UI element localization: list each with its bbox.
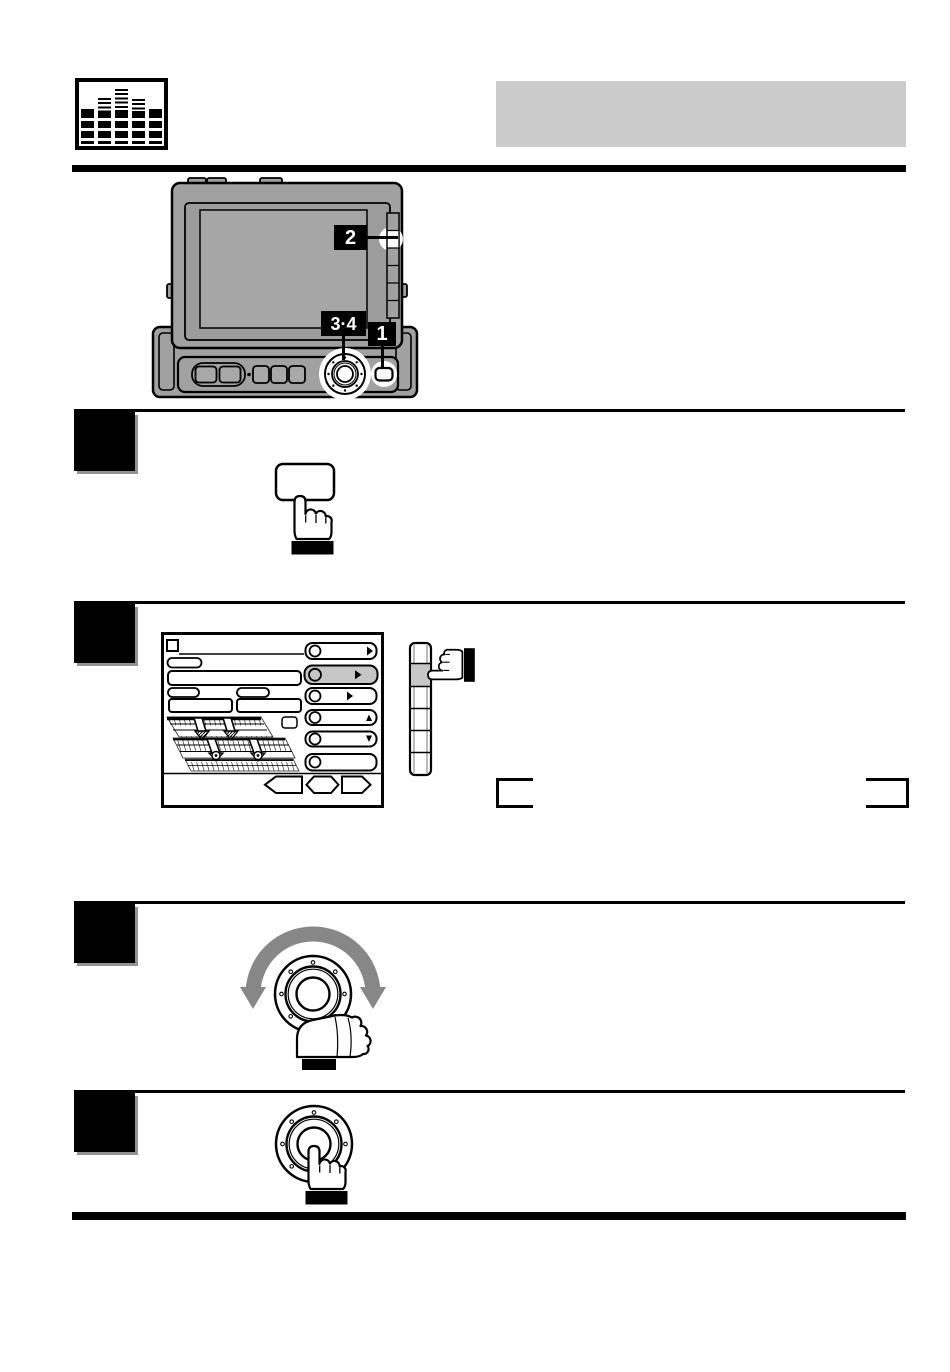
callout-line [365,236,398,239]
press-knob-illustration [270,1096,370,1211]
step-number-box-1 [74,412,135,471]
step-rule [74,409,905,412]
head-unit-illustration [150,176,435,406]
manual-page: 2 3·4 1 [0,0,950,1372]
callout-1: 1 [368,322,396,346]
gripping-hand-icon [297,1015,371,1070]
press-key-illustration [274,458,352,560]
callout-line [381,345,384,368]
screen-value-box [168,671,301,685]
callout-line [342,335,345,360]
side-key-strip-press [404,640,484,780]
eq-bar [132,99,145,144]
eq-bar [149,109,162,144]
header-rule [72,165,906,172]
panel-button [271,366,287,383]
reference-box-right [866,778,909,808]
pressing-hand-icon [292,496,334,555]
screen-small-box [282,717,297,728]
screen-bottom-buttons [265,777,371,794]
step-number-box-3 [74,904,135,963]
step-rule [74,901,905,904]
panel-button [253,366,269,383]
screen-value-box [237,699,301,712]
eq-adjust-screen-illustration [161,632,385,809]
rotary-encoder-knob [319,348,371,400]
panel-button [289,366,305,383]
panel-button [220,367,241,383]
eq-bar [98,98,111,144]
panel-button [196,367,217,383]
screen-mode-square [167,640,178,651]
screen-label-pill [237,688,269,697]
pressed-side-key [411,664,430,686]
screen-label-pill [168,688,199,697]
key-button [276,464,334,500]
highlighted-side-button [388,231,399,249]
callout-2: 2 [334,225,367,250]
section-title-banner [496,81,906,147]
rotate-knob-illustration [233,913,397,1073]
pressing-hand-icon [428,648,475,682]
step-number-box-2 [74,604,135,663]
eq-bar [115,89,128,144]
reference-box-left [496,778,533,808]
button-right-of-knob [371,361,397,387]
screen-value-box [169,699,232,712]
callout-3-4: 3·4 [321,311,366,336]
eq-bar [81,109,94,144]
step-rule [74,601,905,604]
equalizer-icon [75,78,168,150]
step-number-box-4 [74,1093,135,1152]
step-rule [74,1090,905,1093]
footer-rule [72,1212,906,1220]
screen-label-pill [168,658,202,668]
screen-side-button-strip [387,213,399,318]
